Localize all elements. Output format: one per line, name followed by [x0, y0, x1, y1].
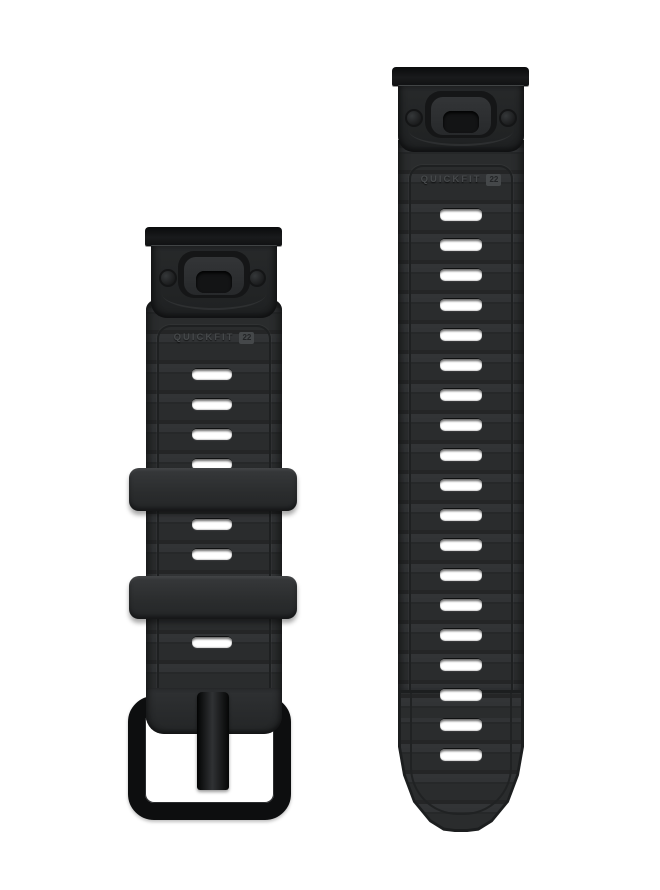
long-band-connector-bar [392, 67, 529, 86]
short-band-size-badge: 22 [239, 332, 254, 344]
long-band-slots [0, 0, 660, 890]
short-band-label-row: QUICKFIT 22 [146, 330, 282, 345]
long-band-label-row: QUICKFIT 22 [398, 172, 524, 187]
short-band-slots [0, 0, 660, 890]
long-band-brand-label: QUICKFIT [421, 174, 482, 185]
spring-pin-left-icon [405, 109, 423, 127]
spring-pin-right-icon [248, 269, 266, 287]
spring-pin-left-icon [159, 269, 177, 287]
buckle-tang [197, 692, 229, 790]
short-band-inner-panel [157, 325, 271, 688]
quickfit-lever-opening [196, 271, 232, 293]
spring-pin-right-icon [499, 109, 517, 127]
long-band-size-badge: 22 [486, 174, 501, 186]
long-band-inner-panel [409, 165, 513, 692]
quickfit-lever-opening [443, 111, 479, 133]
short-band-connector-bar [145, 227, 282, 246]
short-band-keepers [0, 0, 660, 890]
short-band-brand-label: QUICKFIT [174, 332, 235, 343]
product-image: QUICKFIT 22 QUICKFIT 22 [0, 0, 660, 890]
